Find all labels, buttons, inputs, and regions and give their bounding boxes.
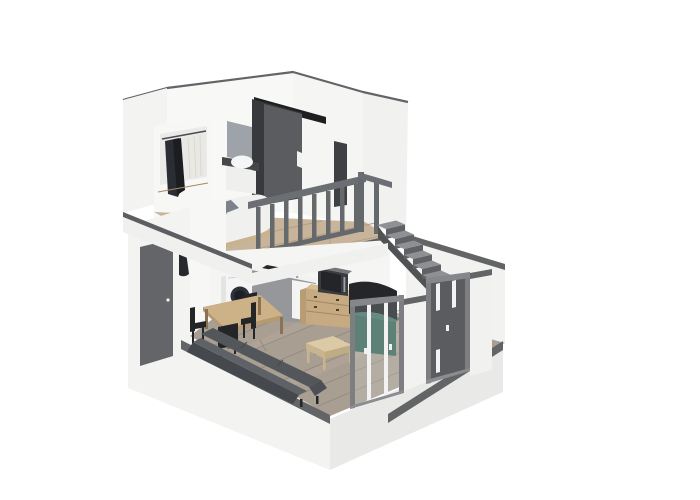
stair-newel-post <box>358 172 364 232</box>
door-stile <box>465 272 470 372</box>
entry-door <box>140 239 173 366</box>
door-handle <box>389 344 392 350</box>
folding-door-2 <box>426 272 470 384</box>
door-pillar <box>404 295 426 391</box>
dresser-side <box>300 288 306 324</box>
door-mullion <box>367 299 371 404</box>
door-stile <box>350 300 355 409</box>
apartment-cutaway-scene <box>0 0 700 500</box>
sliding-door-handle <box>297 151 302 168</box>
entry-door-handle <box>166 298 169 301</box>
microwave-handle <box>344 277 346 292</box>
wardrobe <box>154 117 212 219</box>
stairwell-upper-wall <box>363 92 408 234</box>
wall-pillar <box>404 295 426 391</box>
washbasin <box>231 156 253 169</box>
glass-panes <box>355 297 399 406</box>
door-stile <box>399 295 404 393</box>
stair-post <box>374 178 379 234</box>
glass-slit <box>436 349 440 373</box>
floorplan-3d-rendering <box>0 0 700 500</box>
door-stile <box>426 278 431 384</box>
sliding-door <box>264 104 302 205</box>
door-handle <box>364 348 367 354</box>
door-handle <box>446 325 449 331</box>
glass-slit <box>452 280 456 308</box>
glass-slit <box>436 283 440 311</box>
door-pillar-right <box>470 269 492 376</box>
door-mullion <box>384 297 388 398</box>
wall-pillar <box>470 269 492 376</box>
folding-door-1 <box>350 295 404 409</box>
